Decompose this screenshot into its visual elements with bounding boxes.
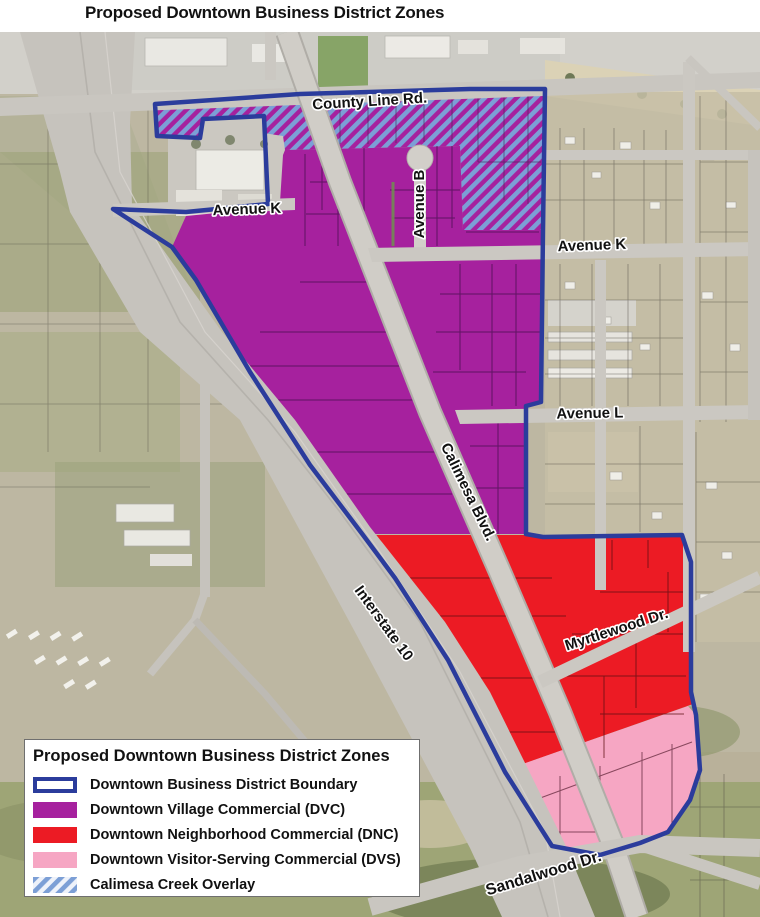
road-north-vertical [265,32,276,80]
creek-overlay-swatch-icon [33,877,77,893]
street-label-avenue-l: Avenue L [556,404,623,422]
legend-label: Downtown Visitor-Serving Commercial (DVS… [90,852,401,868]
dnc-swatch-icon [33,827,77,843]
boundary-swatch-icon [33,777,77,793]
street-label-avenue-k-east: Avenue K [557,236,626,255]
legend-item-dvc: Downtown Village Commercial (DVC) [33,797,411,822]
legend-item-dnc: Downtown Neighborhood Commercial (DNC) [33,822,411,847]
legend-label: Downtown Village Commercial (DVC) [90,802,345,818]
street-label-avenue-b: Avenue B [411,170,428,239]
legend: Proposed Downtown Business District Zone… [24,739,420,897]
avenue-b-cul-de-sac [407,145,433,171]
road-west-vertical [200,372,210,597]
legend-label: Downtown Business District Boundary [90,777,357,793]
dvc-swatch-icon [33,802,77,818]
legend-title: Proposed Downtown Business District Zone… [33,747,411,766]
dvs-swatch-icon [33,852,77,868]
street-label-avenue-k-west: Avenue K [212,200,281,219]
legend-item-dvs: Downtown Visitor-Serving Commercial (DVS… [33,847,411,872]
legend-item-boundary: Downtown Business District Boundary [33,772,411,797]
legend-item-overlay: Calimesa Creek Overlay [33,872,411,897]
zoning-map-page: Proposed Downtown Business District Zone… [0,0,760,917]
road-east-street [545,150,760,160]
legend-label: Calimesa Creek Overlay [90,877,255,893]
road-east-vertical-2 [595,260,606,590]
page-title: Proposed Downtown Business District Zone… [85,3,685,23]
road-east-vertical-3 [748,150,760,420]
legend-label: Downtown Neighborhood Commercial (DNC) [90,827,399,843]
